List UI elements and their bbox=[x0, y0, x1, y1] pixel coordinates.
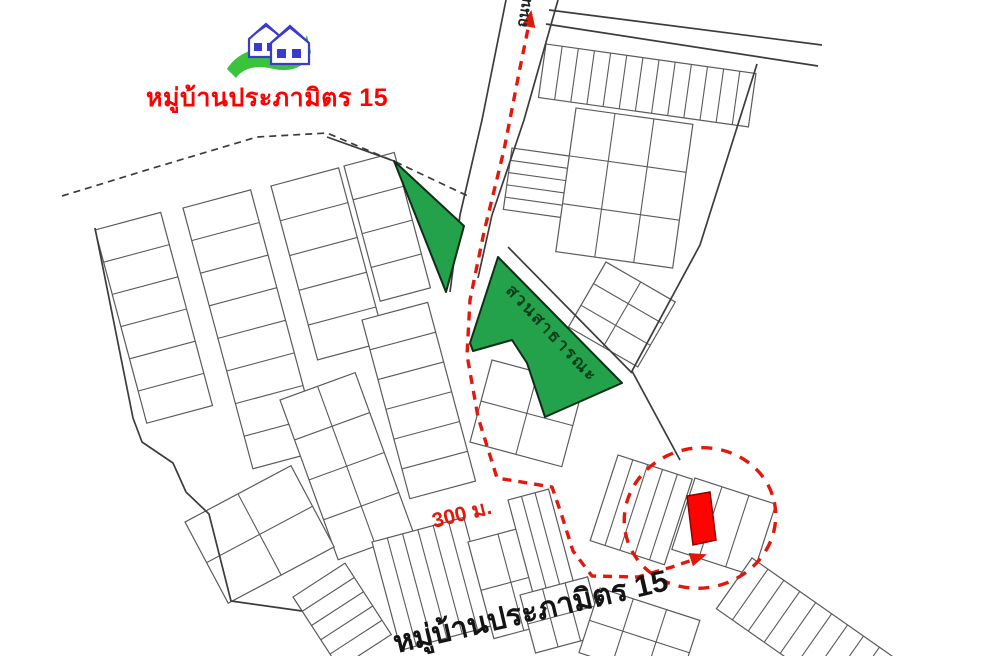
boundary-road-line bbox=[549, 10, 822, 45]
boundary-road-line bbox=[478, 0, 558, 278]
plot-block-outline bbox=[538, 44, 755, 127]
highlighted-plot bbox=[687, 492, 716, 545]
plot-block-outline bbox=[556, 108, 693, 268]
plot-block-outline bbox=[503, 148, 569, 217]
plot-block bbox=[293, 563, 391, 656]
plot-block bbox=[538, 44, 755, 127]
map-canvas: สวนสาธารณะ300 ม.หมู่บ้านประภามิตร 15ถนน bbox=[0, 0, 1000, 656]
plot-block bbox=[556, 108, 693, 268]
boundary-road-line bbox=[327, 137, 394, 161]
plot-block bbox=[503, 148, 569, 217]
plot-block-outline bbox=[293, 563, 391, 656]
map-stage: สวนสาธารณะ300 ม.หมู่บ้านประภามิตร 15ถนน … bbox=[0, 0, 1000, 656]
